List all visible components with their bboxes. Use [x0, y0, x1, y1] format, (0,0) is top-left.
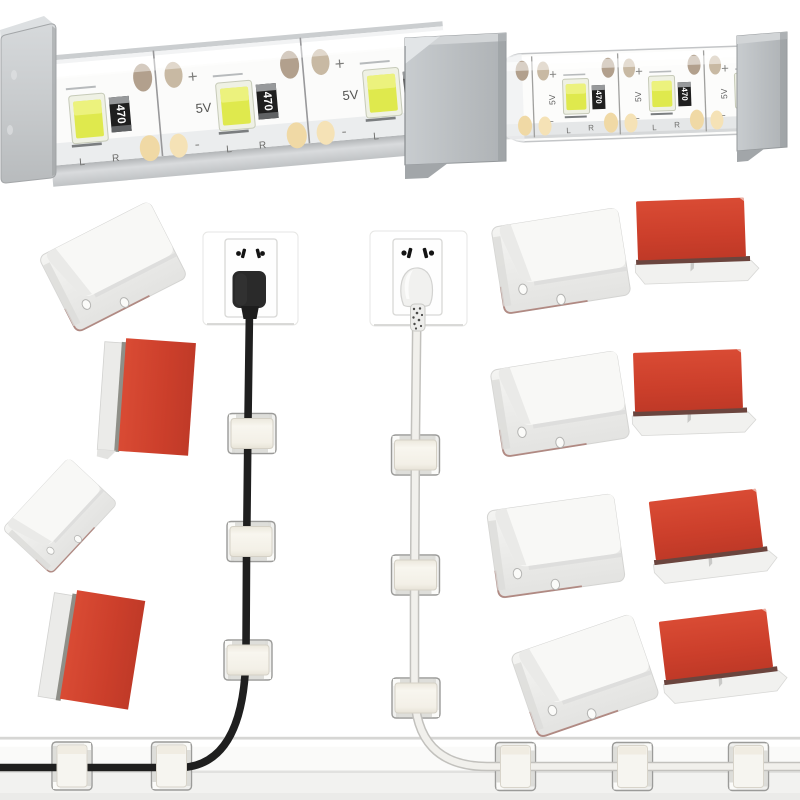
svg-text:R: R: [674, 120, 680, 129]
svg-text:+: +: [187, 67, 199, 87]
svg-text:5V: 5V: [547, 94, 557, 105]
svg-text:-: -: [722, 108, 726, 122]
svg-text:R: R: [112, 153, 120, 165]
svg-text:470: 470: [260, 91, 274, 111]
svg-text:470: 470: [594, 90, 603, 104]
svg-text:5V: 5V: [633, 91, 643, 102]
svg-text:470: 470: [680, 87, 689, 101]
svg-text:470: 470: [113, 104, 127, 124]
svg-text:+: +: [334, 54, 346, 74]
svg-text:5V: 5V: [342, 87, 359, 103]
svg-text:-: -: [636, 111, 640, 125]
svg-text:R: R: [588, 123, 594, 132]
svg-text:-: -: [550, 114, 554, 128]
svg-text:5V: 5V: [719, 88, 729, 99]
svg-text:R: R: [259, 140, 267, 152]
svg-text:5V: 5V: [195, 100, 212, 116]
